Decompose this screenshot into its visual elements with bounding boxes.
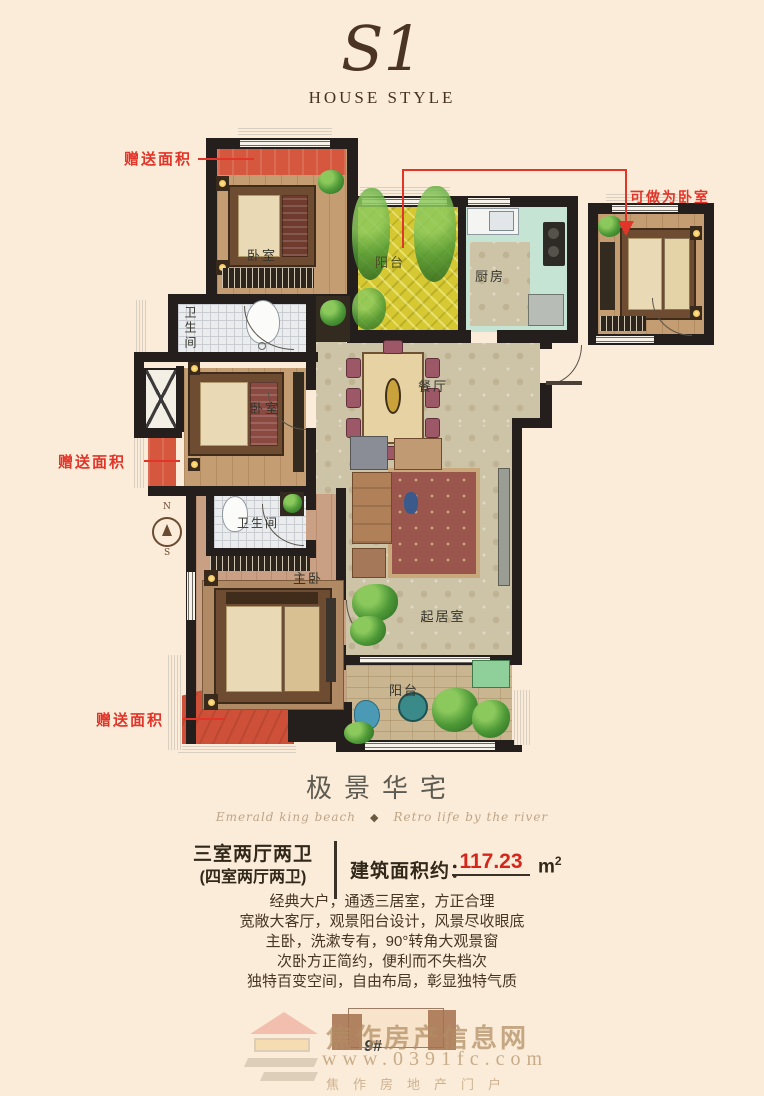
- drain: [258, 342, 266, 350]
- description-line: 经典大户，通透三居室，方正合理: [132, 892, 632, 912]
- armchair: [350, 436, 388, 470]
- living-rug: [388, 468, 480, 578]
- logo-stroke-icon: [260, 1072, 318, 1081]
- wardrobe: [222, 268, 314, 288]
- window-sill: [238, 128, 332, 136]
- wall: [512, 418, 522, 665]
- watermark-site-tagline: 焦作房地产门户: [326, 1074, 515, 1093]
- wall: [206, 138, 217, 303]
- room-label-balcony-top: 阳台: [368, 252, 412, 271]
- room-label-bedroom-top: 卧室: [232, 245, 292, 264]
- layout-main: 三室两厅两卫: [178, 843, 328, 868]
- ornament-icon: ◆: [356, 811, 393, 824]
- tagline-left: Emerald king beach: [216, 810, 356, 824]
- bed-blanket: [284, 606, 320, 692]
- fridge: [528, 294, 564, 326]
- room-label-balcony-bottom: 阳台: [382, 680, 426, 699]
- description-line: 独特百变空间，自由布局，彰显独特气质: [132, 972, 632, 992]
- watermark-site-url: www.0391fc.com: [322, 1048, 548, 1071]
- elevator-shaft: [144, 368, 178, 430]
- tagline: Emerald king beach◆Retro life by the riv…: [0, 810, 764, 824]
- bay-window-lines: [178, 746, 296, 755]
- lamp: [216, 176, 229, 191]
- compass-south: S: [164, 548, 170, 558]
- convertible-room-label: 可做为卧室: [630, 187, 710, 207]
- compass-north: N: [163, 502, 171, 512]
- inset-dresser: [600, 316, 646, 331]
- leader-line: [144, 460, 180, 462]
- wall: [458, 204, 466, 332]
- wall: [206, 548, 314, 556]
- logo-subtitle: HOUSE STYLE: [0, 88, 764, 108]
- person-figure: [404, 492, 418, 514]
- wall: [347, 330, 471, 343]
- sofa-chaise: [394, 438, 442, 470]
- logo-roof-icon: [250, 1012, 318, 1034]
- area-unit: m2: [538, 854, 562, 878]
- room-label-dining: 餐厅: [408, 376, 458, 395]
- lamp: [204, 694, 218, 710]
- floorplan-flyer: S1 HOUSE STYLE: [0, 0, 764, 1096]
- logo-monogram: S1: [0, 18, 764, 80]
- watermark-logo: [238, 1012, 330, 1092]
- gift-area-label-2: 赠送面积: [58, 451, 126, 472]
- bed-pillows: [226, 592, 318, 604]
- description-line: 宽敞大客厅，观景阳台设计，风景尽收眼底: [132, 912, 632, 932]
- area-value: 117.23: [452, 850, 530, 876]
- window: [360, 657, 490, 663]
- layout-spec: 三室两厅两卫 (四室两厅两卫): [178, 843, 328, 888]
- wall: [306, 488, 316, 510]
- window: [596, 336, 654, 343]
- leader-line: [402, 169, 627, 171]
- entry-door-arc: [546, 345, 582, 385]
- room-label-bathroom-1: 卫生间: [182, 300, 199, 356]
- tv-panel: [326, 598, 336, 682]
- dining-chair: [383, 340, 403, 354]
- leader-line: [182, 718, 226, 720]
- window: [468, 198, 510, 205]
- tv-cabinet: [498, 468, 510, 586]
- lamp: [188, 458, 200, 471]
- dining-chair: [346, 418, 361, 438]
- wall: [588, 203, 598, 345]
- wall: [704, 203, 714, 345]
- layout-alt: (四室两厅两卫): [178, 868, 328, 889]
- wall: [497, 330, 578, 343]
- gift-area-label-3: 赠送面积: [96, 709, 164, 730]
- sofa: [352, 472, 392, 544]
- page-title: 极景华宅: [0, 768, 764, 805]
- bed-mattress: [226, 606, 282, 692]
- bay-window-lines: [168, 655, 182, 750]
- arrow-down-icon: [618, 221, 634, 236]
- lamp: [204, 570, 218, 586]
- description-line: 主卧，洗漱专有，90°转角大观景窗: [132, 932, 632, 952]
- kitchen-sink: [489, 211, 514, 231]
- tagline-right: Retro life by the river: [393, 810, 548, 824]
- compass-needle-icon: [162, 524, 172, 536]
- wall: [306, 294, 316, 390]
- armchair: [352, 548, 386, 578]
- inset-wardrobe: [600, 242, 615, 310]
- window-sill: [136, 300, 146, 352]
- logo-bar-icon: [254, 1038, 310, 1052]
- planter-box: [472, 660, 510, 688]
- gift-area-label-1: 赠送面积: [124, 148, 192, 169]
- bay-window-lines: [514, 690, 532, 745]
- wall: [134, 360, 144, 438]
- dining-chair: [346, 358, 361, 378]
- lamp: [690, 226, 702, 240]
- wall: [306, 428, 316, 488]
- room-label-bedroom-mid: 卧室: [240, 398, 290, 417]
- table-centerpiece: [385, 378, 401, 414]
- leader-line: [198, 158, 254, 160]
- window: [240, 140, 330, 147]
- leader-line: [625, 169, 627, 223]
- wall: [567, 196, 578, 343]
- room-label-living: 起居室: [408, 606, 478, 625]
- window: [365, 742, 495, 750]
- leader-line: [402, 170, 404, 248]
- entry-door-leaf: [546, 381, 582, 385]
- wall: [134, 430, 182, 438]
- logo-stroke-icon: [244, 1058, 318, 1067]
- room-label-master: 主卧: [286, 568, 330, 587]
- dining-chair: [346, 388, 361, 408]
- burner: [548, 228, 559, 239]
- room-label-kitchen: 厨房: [468, 266, 512, 285]
- room-label-bathroom-2: 卫生间: [226, 514, 290, 531]
- dining-chair: [425, 418, 440, 438]
- window: [187, 572, 195, 620]
- lamp: [188, 362, 200, 375]
- divider: [334, 841, 337, 899]
- window-sill: [134, 438, 146, 488]
- burner: [548, 246, 559, 257]
- wall: [206, 492, 214, 552]
- dining-chair: [425, 358, 440, 378]
- description-line: 次卧方正简约，便利而不失档次: [132, 952, 632, 972]
